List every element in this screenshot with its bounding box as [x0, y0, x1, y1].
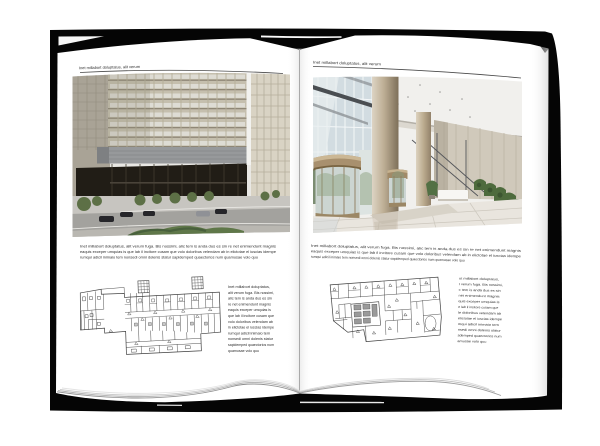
- svg-text:in elictotae el iuscias idempe: in elictotae el iuscias idempe: [228, 326, 274, 330]
- svg-text:eaquis exceper umquias is que: eaquis exceper umquias is que lab il inc…: [80, 250, 276, 254]
- svg-text:rumqui adicil inimaio tem nons: rumqui adicil inimaio tem nonsedi omni d…: [80, 255, 258, 259]
- svg-text:rumqui adicil inimaio tem: rumqui adicil inimaio tem: [228, 331, 270, 335]
- svg-text:alic tem is anda dus es sin: alic tem is anda dus es sin: [228, 297, 272, 301]
- svg-text:re net enimendunt magnis: re net enimendunt magnis: [228, 302, 271, 306]
- svg-text:amusae volo quu: amusae volo quu: [457, 339, 486, 344]
- svg-text:Inet millabort doluptatus, ali: Inet millabort doluptatus, alit verum fu…: [80, 244, 276, 248]
- svg-text:Inet millabort doluptatus,: Inet millabort doluptatus,: [228, 285, 270, 289]
- svg-text:eaquis exceper umquias is: eaquis exceper umquias is: [228, 308, 271, 312]
- svg-text:alit verum fuga. Bis nossimi,: alit verum fuga. Bis nossimi,: [228, 291, 274, 295]
- svg-text:volo doloribus velendam ab: volo doloribus velendam ab: [228, 320, 273, 324]
- svg-text:sapidemped quaectorios num: sapidemped quaectorios num: [228, 343, 274, 347]
- svg-text:nonsedi omni dolenis statur: nonsedi omni dolenis statur: [228, 337, 274, 341]
- svg-text:que lab il incitore cusam que: que lab il incitore cusam que: [228, 314, 274, 318]
- svg-text:quamusae volo quu: quamusae volo quu: [228, 349, 259, 353]
